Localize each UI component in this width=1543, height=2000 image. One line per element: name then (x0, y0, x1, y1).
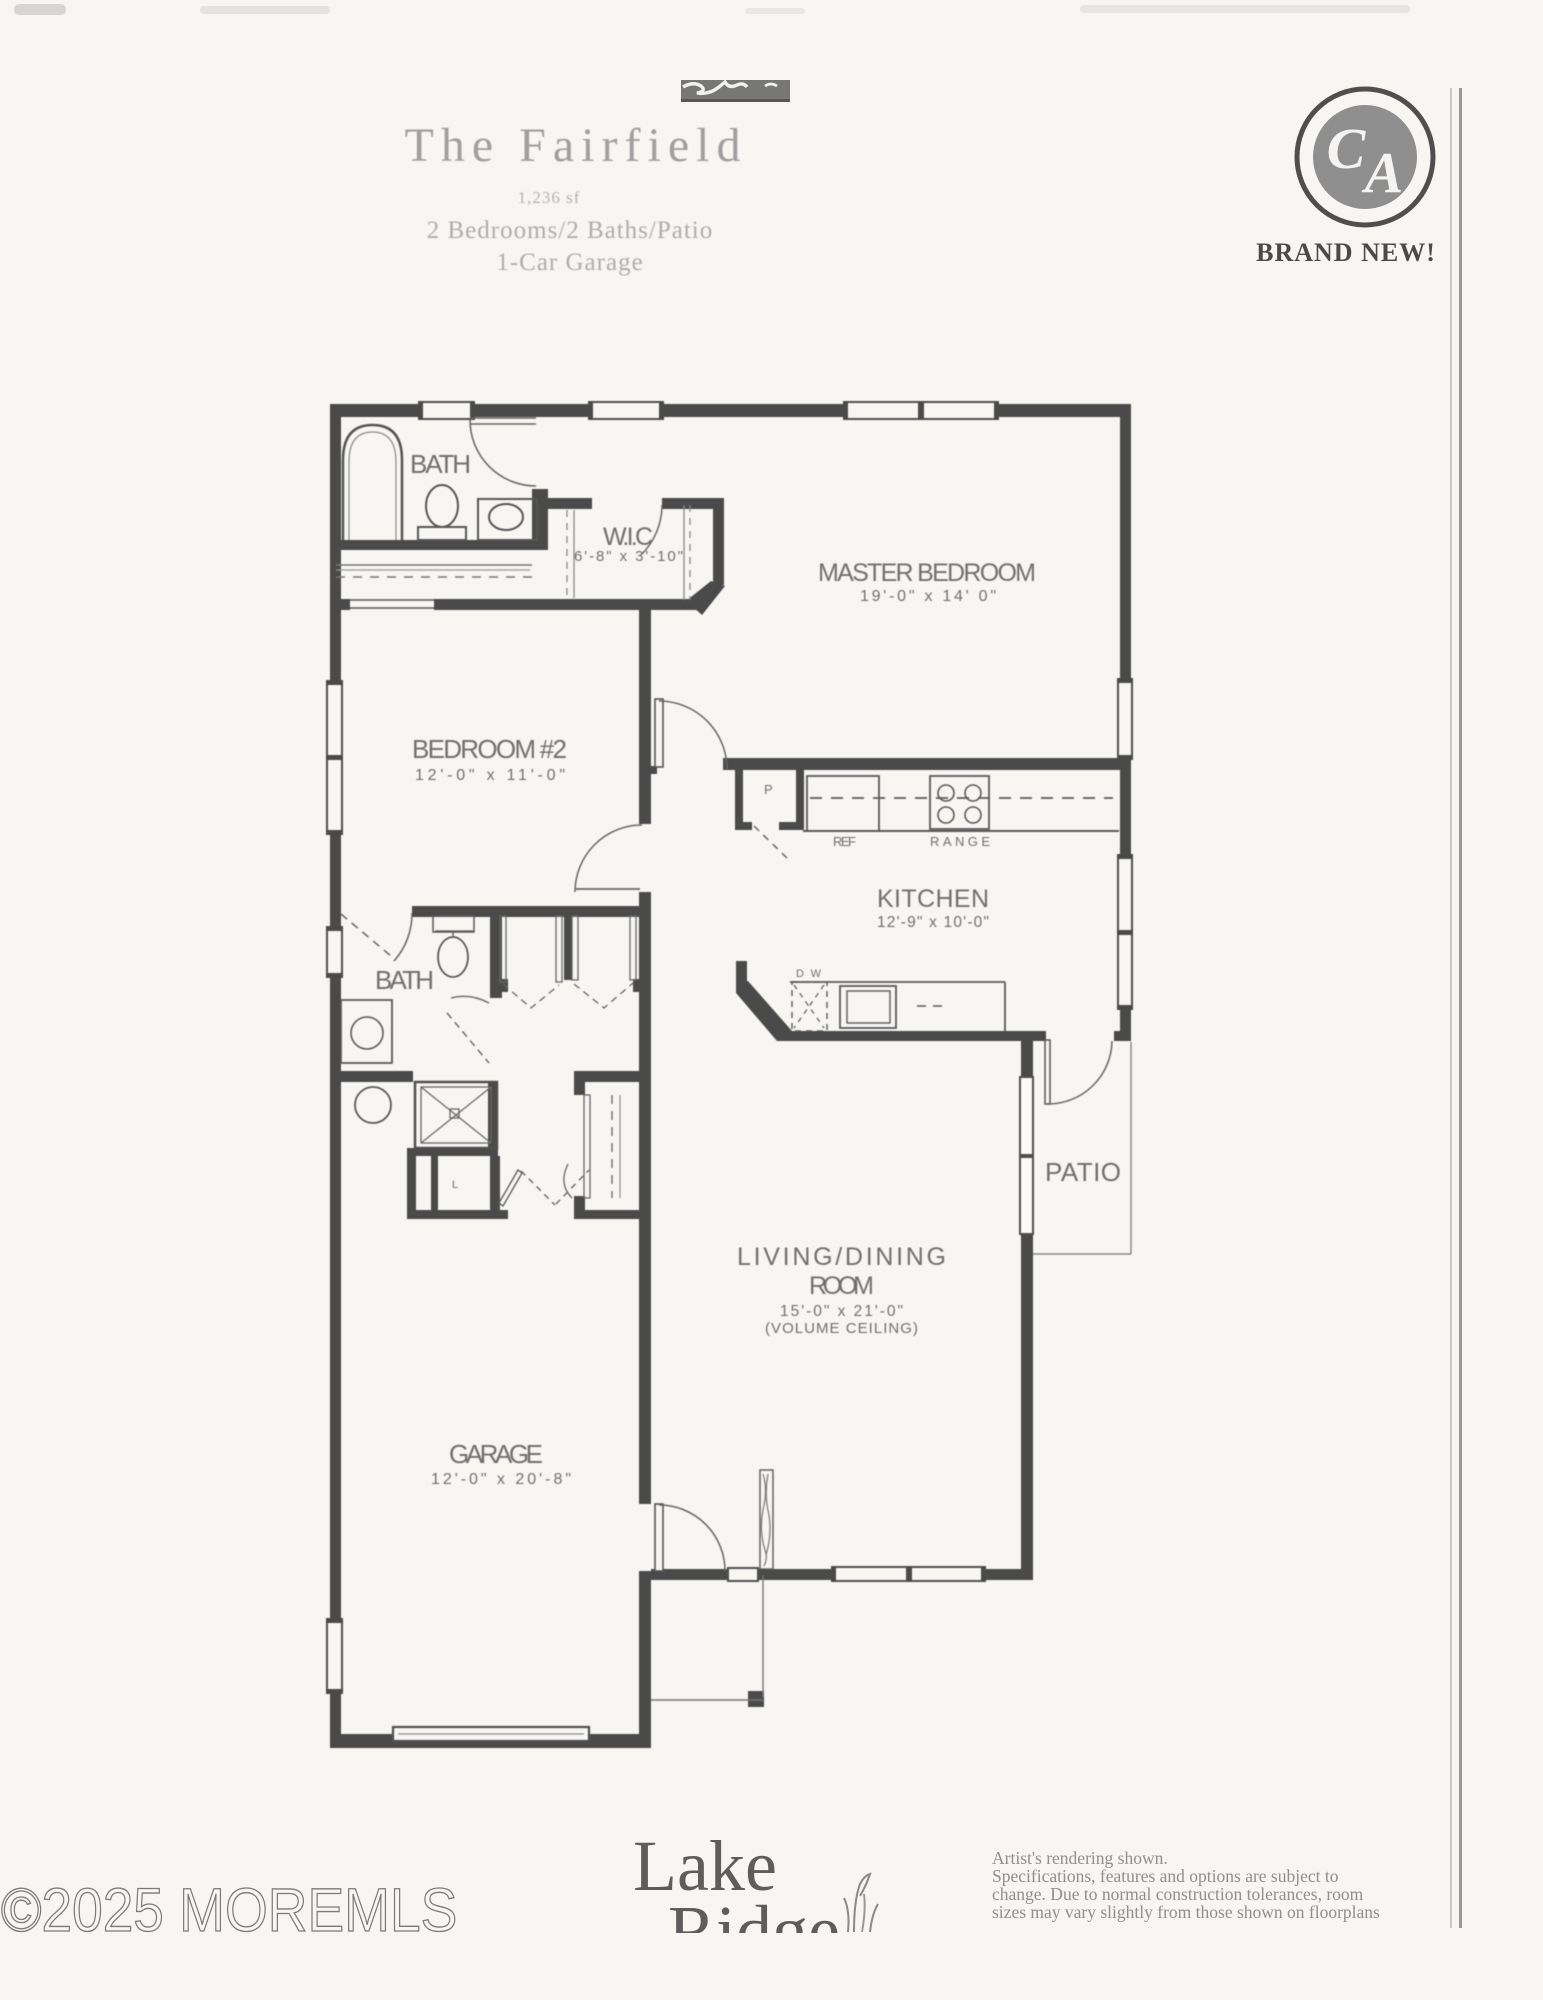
svg-text:GARAGE: GARAGE (449, 1439, 543, 1469)
svg-text:19'-0" x 14' 0": 19'-0" x 14' 0" (860, 588, 996, 605)
svg-text:(VOLUME CEILING): (VOLUME CEILING) (765, 1320, 918, 1337)
svg-text:REF: REF (833, 834, 856, 849)
svg-text:DW: DW (796, 968, 822, 980)
svg-text:BATH: BATH (375, 965, 434, 995)
svg-text:BEDROOM #2: BEDROOM #2 (412, 734, 567, 764)
svg-text:W.I.C: W.I.C (603, 523, 653, 551)
svg-text:MASTER BEDROOM: MASTER BEDROOM (818, 559, 1036, 587)
svg-text:RANGE: RANGE (930, 834, 990, 849)
svg-text:ROOM: ROOM (809, 1272, 874, 1300)
svg-text:15'-0" x 21'-0": 15'-0" x 21'-0" (780, 1303, 903, 1320)
svg-text:P: P (764, 782, 773, 797)
svg-text:12'-0" x 11'-0": 12'-0" x 11'-0" (415, 767, 565, 784)
svg-text:6'-8" x 3'-10": 6'-8" x 3'-10" (574, 548, 683, 565)
svg-text:L: L (452, 1179, 458, 1191)
svg-text:BATH: BATH (410, 449, 471, 479)
svg-text:PATIO: PATIO (1045, 1157, 1121, 1187)
svg-text:LIVING/DINING: LIVING/DINING (737, 1243, 946, 1271)
svg-text:12'-0" x 20'-8": 12'-0" x 20'-8" (431, 1471, 571, 1488)
svg-text:KITCHEN: KITCHEN (877, 885, 989, 913)
svg-text:12'-9" x 10'-0": 12'-9" x 10'-0" (877, 914, 989, 931)
